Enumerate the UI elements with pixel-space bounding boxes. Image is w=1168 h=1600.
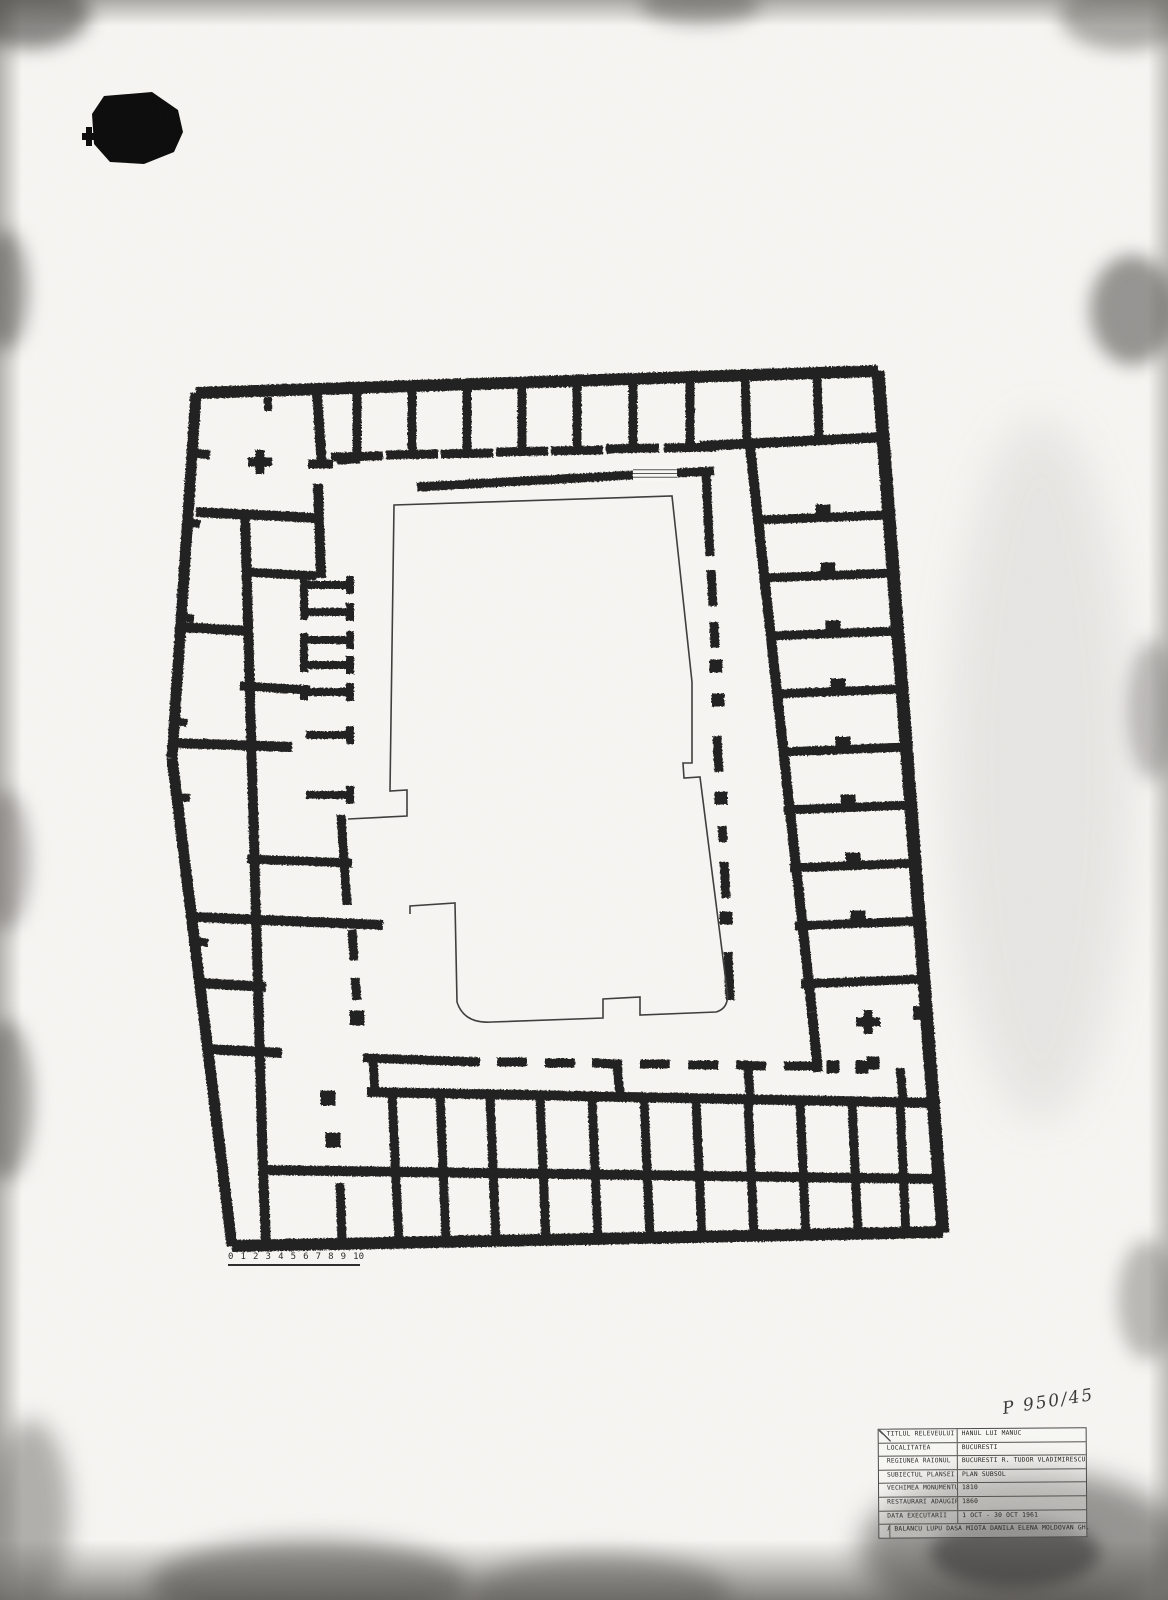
wall-segment: [341, 815, 347, 905]
title-block-value: BALANCU LUPU DASA MIOTA DANILA ELENA MOL…: [890, 1523, 1090, 1537]
pier: [816, 505, 831, 520]
wall-segment: [617, 1066, 620, 1095]
pier: [350, 1011, 365, 1026]
title-block-row: SUBIECTUL PLANSEIPLAN SUBSOL: [879, 1468, 1086, 1483]
scale-tick-label: 9: [341, 1252, 346, 1262]
pier: [710, 660, 723, 673]
pier: [720, 912, 733, 925]
wall-segment: [181, 627, 248, 631]
pier: [827, 1061, 840, 1074]
scale-tick-label: 10: [353, 1252, 364, 1262]
wall-segment: [175, 721, 187, 723]
title-block: TITLUL RELEVEULUIHANUL LUI MANUCLOCALITA…: [878, 1427, 1088, 1538]
title-block-value: HANUL LUI MANUC: [958, 1428, 1086, 1441]
scale-bar: 012345678910: [228, 1252, 364, 1266]
scale-tick-label: 5: [291, 1252, 296, 1262]
cross-pier: [256, 450, 265, 474]
wall-segment: [714, 622, 715, 648]
wall-segment: [182, 617, 194, 619]
scale-tick-label: 8: [328, 1252, 333, 1262]
pier: [841, 795, 856, 810]
wall-segment: [592, 1063, 622, 1064]
pier: [831, 679, 846, 694]
pier: [826, 621, 841, 636]
wall-segment: [206, 1049, 282, 1053]
wall-segment: [263, 1170, 266, 1243]
floor-plan-drawing: [0, 0, 1168, 1600]
wall-segment: [196, 512, 318, 518]
scale-tick-label: 7: [316, 1252, 321, 1262]
wall-segment: [540, 1097, 546, 1240]
wall-segment: [331, 456, 383, 457]
pier: [851, 911, 866, 926]
scale-tick-label: 0: [228, 1252, 233, 1262]
wall-segment: [317, 394, 322, 468]
title-block-value: 1810: [958, 1483, 1086, 1496]
wall-segment: [240, 686, 310, 690]
wall-segment: [318, 484, 321, 578]
scale-tick-label: 2: [253, 1252, 258, 1262]
staircase-symbol: [633, 466, 677, 481]
title-block-value: 1860: [958, 1496, 1086, 1509]
wall-segment: [440, 1095, 446, 1241]
wall-segment: [490, 1096, 496, 1241]
wall-segment: [340, 1183, 342, 1240]
wall-segment: [173, 743, 292, 747]
wall-segment: [706, 474, 710, 556]
wall-segment: [441, 453, 493, 454]
wall-segment: [188, 522, 200, 524]
wall-segment: [717, 736, 719, 772]
title-block-row: VECHIMEA MONUMENTULUI1810: [879, 1482, 1086, 1497]
scale-bar-rule: [228, 1264, 360, 1266]
wall-segment: [677, 471, 714, 473]
wall-segment: [246, 572, 316, 576]
wall-segment: [696, 1100, 702, 1238]
wall-segment: [748, 1100, 754, 1237]
wall-segment: [900, 1068, 903, 1100]
pier: [867, 1057, 880, 1070]
wall-segment: [606, 448, 659, 449]
scale-tick-label: 4: [278, 1252, 283, 1262]
scale-bar-numbers: 012345678910: [228, 1252, 364, 1262]
title-block-label: TITLUL RELEVEULUI: [879, 1429, 958, 1442]
wall-segment: [355, 978, 357, 1000]
title-block-value: BUCURESTI: [958, 1442, 1086, 1455]
pier: [326, 1133, 341, 1148]
wall-segment: [800, 1101, 806, 1236]
wall-segment: [352, 930, 354, 960]
wall-segment: [373, 1060, 375, 1092]
wall-segment: [711, 570, 713, 606]
scale-tick-label: 6: [303, 1252, 308, 1262]
wall-segment: [247, 859, 352, 863]
title-block-value: PLAN SUBSOL: [958, 1469, 1086, 1482]
pier: [715, 792, 728, 805]
pier: [836, 737, 851, 752]
scale-tick-label: 3: [266, 1252, 271, 1262]
title-block-row: REGIUNEA RAIONULBUCURESTI R. TUDOR VLADI…: [879, 1454, 1086, 1469]
title-block-row: RESTAURARI ADAUGIRI1860: [879, 1495, 1086, 1510]
pier: [821, 563, 836, 578]
pier: [321, 1091, 336, 1106]
wall-segment: [363, 1058, 480, 1062]
title-block-label: DATA EXECUTARII: [879, 1511, 958, 1524]
pier: [913, 1006, 927, 1020]
wall-segment: [196, 941, 208, 943]
pier: [846, 853, 861, 868]
title-block-label: RESTAURARI ADAUGIRI: [879, 1497, 958, 1510]
title-block-value: BUCURESTI R. TUDOR VLADIMIRESCU: [958, 1455, 1086, 1468]
wall-segment: [196, 453, 210, 455]
wall-segment: [724, 862, 726, 898]
wall-segment: [644, 1099, 650, 1238]
title-block-value: 1 OCT - 30 OCT 1961: [958, 1510, 1086, 1523]
wall-segment: [817, 373, 819, 438]
wall-segment: [745, 375, 747, 440]
wall-segment: [728, 952, 730, 1000]
wall-segment: [592, 1098, 598, 1239]
wall-segment: [722, 826, 723, 842]
title-block-label: AUTORII RELEVEULUI: [879, 1525, 890, 1538]
wall-segment: [386, 454, 438, 455]
wall-segment: [748, 1066, 750, 1096]
title-block-label: VECHIMEA MONUMENTULUI: [879, 1484, 958, 1497]
wall-segment: [900, 1102, 906, 1235]
title-block-row: LOCALITATEABUCURESTI: [879, 1441, 1086, 1456]
wall-segment: [551, 450, 603, 451]
title-block-row: DATA EXECUTARII1 OCT - 30 OCT 1961: [879, 1509, 1086, 1524]
pier: [712, 694, 725, 707]
wall-segment: [852, 1102, 858, 1235]
wall-segment: [801, 979, 924, 984]
title-block-row: TITLUL RELEVEULUIHANUL LUI MANUC: [879, 1428, 1086, 1442]
wall-segment: [200, 983, 266, 987]
scale-tick-label: 1: [241, 1252, 246, 1262]
wall-segment: [177, 797, 190, 798]
title-block-label: REGIUNEA RAIONUL: [879, 1456, 958, 1469]
wall-segment: [496, 451, 548, 452]
title-block-row: AUTORII RELEVEULUIBALANCU LUPU DASA MIOT…: [879, 1522, 1086, 1537]
scanned-drawing-sheet: 012345678910 P 950/45 TITLUL RELEVEULUIH…: [0, 0, 1168, 1600]
title-block-label: SUBIECTUL PLANSEI: [879, 1470, 958, 1483]
title-block-label: LOCALITATEA: [879, 1443, 958, 1456]
cross-pier: [864, 1010, 873, 1034]
